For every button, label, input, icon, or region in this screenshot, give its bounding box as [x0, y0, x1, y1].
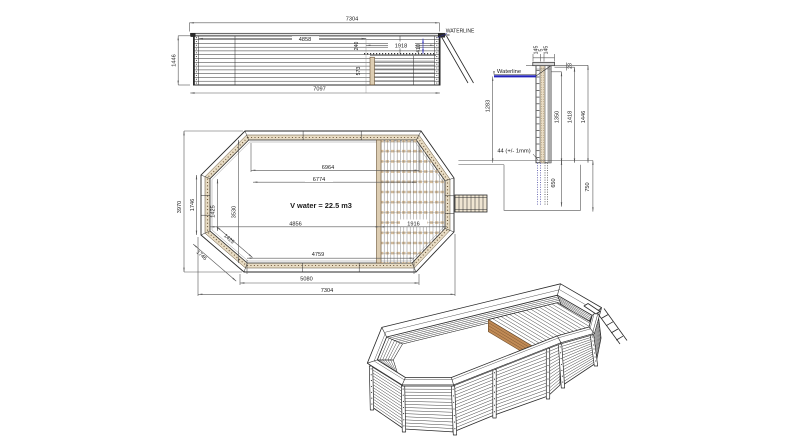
svg-text:1425: 1425	[211, 205, 217, 217]
svg-text:4759: 4759	[312, 252, 324, 258]
svg-text:1918: 1918	[395, 43, 407, 49]
svg-text:1418: 1418	[568, 111, 574, 123]
svg-text:1916: 1916	[407, 221, 419, 227]
svg-text:1283: 1283	[486, 100, 492, 112]
svg-text:5080: 5080	[300, 277, 312, 283]
svg-text:650: 650	[551, 178, 557, 187]
svg-text:750: 750	[585, 182, 591, 191]
svg-text:7304: 7304	[321, 288, 333, 294]
svg-text:1446: 1446	[581, 111, 587, 123]
svg-text:Waterline: Waterline	[497, 69, 521, 75]
svg-text:1746: 1746	[190, 199, 196, 211]
svg-text:V water = 22.5 m3: V water = 22.5 m3	[290, 201, 352, 210]
svg-text:1446: 1446	[172, 54, 178, 66]
svg-text:410: 410	[416, 44, 422, 53]
svg-text:7304: 7304	[346, 16, 358, 22]
svg-text:6774: 6774	[313, 177, 325, 183]
svg-text:1350: 1350	[555, 111, 561, 123]
svg-text:4858: 4858	[299, 37, 311, 43]
svg-text:WATERLINE: WATERLINE	[446, 29, 475, 35]
svg-text:28: 28	[568, 63, 574, 69]
svg-text:573: 573	[356, 67, 362, 76]
svg-text:145: 145	[544, 46, 550, 55]
svg-text:6964: 6964	[322, 165, 334, 171]
svg-text:7097: 7097	[313, 86, 325, 92]
svg-text:3970: 3970	[177, 201, 183, 213]
svg-text:240: 240	[354, 42, 360, 51]
svg-text:3530: 3530	[231, 206, 237, 218]
svg-text:4856: 4856	[289, 221, 301, 227]
svg-text:44 (+/- 1mm): 44 (+/- 1mm)	[497, 149, 530, 155]
